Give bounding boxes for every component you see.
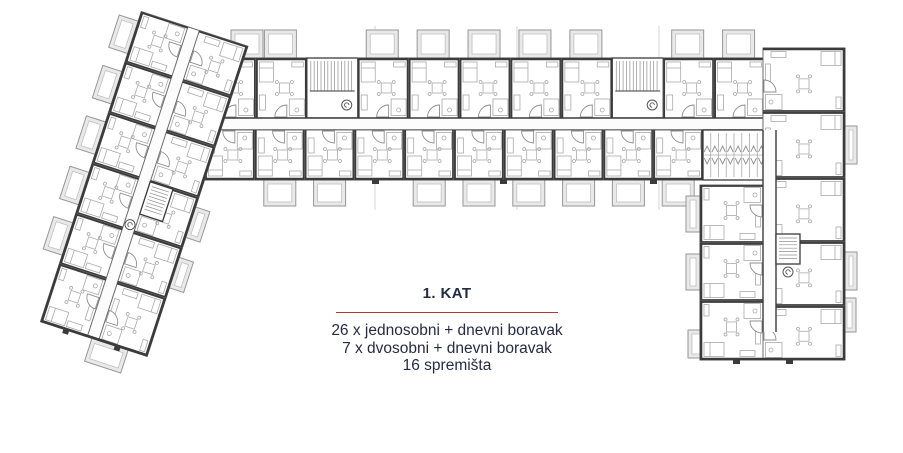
apartment-unit [409,58,460,118]
wing-horizontal [205,30,765,206]
balcony [519,30,551,58]
stat-line-one-room: 26 x jednosobni + dnevni boravak [0,322,894,340]
apartment-unit [354,130,404,180]
apartment-unit [561,58,612,118]
balcony [314,180,346,206]
stat-line-storage: 16 spremišta [0,357,894,375]
elevator-icon [342,100,352,110]
apartment-unit [663,58,714,118]
balcony [366,30,398,58]
apartment-unit [603,130,653,180]
apartment-unit [305,130,355,180]
balcony [417,30,449,58]
apartment-unit [454,130,504,180]
balcony [463,180,495,206]
apartment-unit [700,185,763,243]
apartment-unit [504,130,554,180]
apartment-unit [554,130,604,180]
balcony [845,126,857,164]
balcony [563,180,595,206]
elevator-icon [783,267,793,277]
floorplan-drawing [0,0,903,453]
apartment-unit [404,130,454,180]
apartment-unit [358,58,409,118]
plan-legend: 1. KAT 26 x jednosobni + dnevni boravak … [0,285,894,375]
legend-divider [336,312,558,313]
balcony [570,30,602,58]
balcony [468,30,500,58]
balcony [264,180,296,206]
apartment-unit [255,130,305,180]
balcony [612,180,644,206]
balcony [413,180,445,206]
elevator-icon [647,100,657,110]
floorplan-page: 1. KAT 26 x jednosobni + dnevni boravak … [0,0,903,453]
apartment-unit [714,58,765,118]
storage-room [703,130,765,180]
balcony [672,30,704,58]
balcony [264,30,296,58]
stat-line-two-room: 7 x dvosobni + dnevni boravak [0,340,894,358]
apartment-unit [460,58,511,118]
stair-core [776,234,800,264]
apartment-unit [256,58,307,118]
apartment-unit [510,58,561,118]
balcony [513,180,545,206]
apartment-unit [763,48,845,112]
balcony [723,30,755,58]
legend-stats: 26 x jednosobni + dnevni boravak 7 x dvo… [0,322,894,375]
floor-title: 1. KAT [0,285,894,302]
apartment-unit [653,130,703,180]
balcony [686,196,700,232]
